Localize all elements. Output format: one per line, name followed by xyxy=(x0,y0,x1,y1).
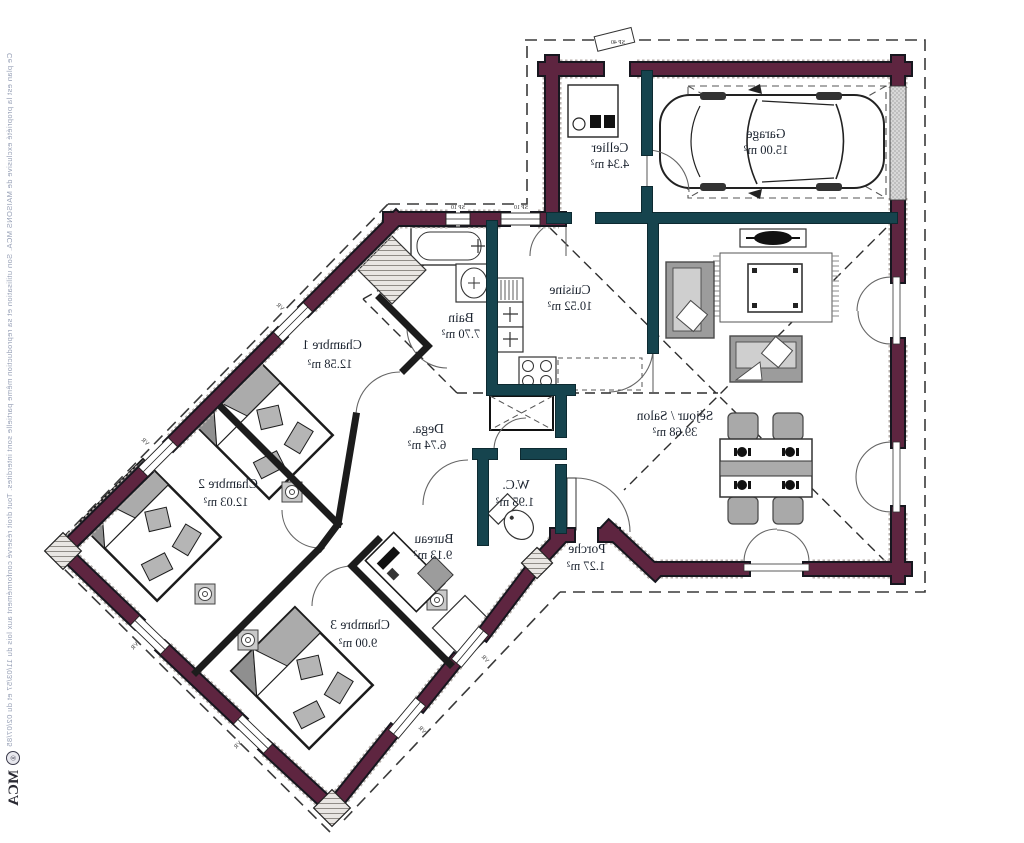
sofa-bottom xyxy=(730,336,802,382)
hall-cupboard xyxy=(490,396,553,430)
svg-text:9.13 m²: 9.13 m² xyxy=(414,548,453,562)
coffee-table xyxy=(748,264,802,312)
svg-text:Porche: Porche xyxy=(568,541,606,556)
svg-text:Bureau: Bureau xyxy=(414,531,453,546)
garage-car xyxy=(660,84,884,199)
svg-text:Séjour / Salon: Séjour / Salon xyxy=(637,408,714,423)
svg-text:Cuisine: Cuisine xyxy=(549,282,590,297)
sofa-left xyxy=(666,262,714,338)
svg-text:10.52 m²: 10.52 m² xyxy=(547,299,592,313)
svg-text:Dega.: Dega. xyxy=(412,421,444,436)
mca-logo: ® MCA xyxy=(6,752,22,806)
tv-stand xyxy=(740,229,806,247)
garage-door xyxy=(890,86,906,200)
nightstand-lamp-2 xyxy=(195,584,215,604)
window-label-sp10-a: SP 10 xyxy=(451,205,465,211)
svg-text:1.95 m²: 1.95 m² xyxy=(496,495,535,509)
svg-text:12.03 m²: 12.03 m² xyxy=(203,495,248,509)
svg-text:1.27 m²: 1.27 m² xyxy=(567,559,606,573)
cellier-water-heater xyxy=(568,85,618,137)
svg-text:Chambre 3: Chambre 3 xyxy=(330,617,390,632)
window-label-sp10-b: SP 10 xyxy=(514,205,528,211)
svg-text:Chambre 1: Chambre 1 xyxy=(302,337,362,352)
nightstand-lamp-3 xyxy=(238,630,258,650)
mca-logo-text: MCA xyxy=(6,770,22,806)
svg-text:W.C.: W.C. xyxy=(502,477,529,492)
svg-text:12.58 m²: 12.58 m² xyxy=(307,357,352,371)
floor-plan-page: SP 10 SP 10 SP 40 VR VR VR VR VR VR Gara… xyxy=(0,0,1024,843)
bathtub xyxy=(411,227,493,265)
svg-text:Garage: Garage xyxy=(747,126,786,141)
svg-text:39.68 m²: 39.68 m² xyxy=(652,425,697,439)
svg-text:15.00 m²: 15.00 m² xyxy=(743,143,788,157)
window-label-sp40: SP 40 xyxy=(611,40,625,46)
entry-door-leaf xyxy=(567,478,576,530)
copyright-text: Ce plan est la propriété exclusive de MA… xyxy=(5,53,14,747)
svg-text:Bain: Bain xyxy=(448,310,474,325)
floor-plan: SP 10 SP 10 SP 40 VR VR VR VR VR VR Gara… xyxy=(0,0,1024,843)
svg-text:Chambre 2: Chambre 2 xyxy=(198,476,258,491)
mca-logo-symbol: ® xyxy=(10,755,18,761)
svg-text:6.74 m²: 6.74 m² xyxy=(408,438,447,452)
svg-text:9.00 m²: 9.00 m² xyxy=(339,636,378,650)
svg-text:7.70 m²: 7.70 m² xyxy=(442,327,481,341)
svg-text:Cellier: Cellier xyxy=(591,140,628,155)
svg-text:4.34 m²: 4.34 m² xyxy=(591,157,630,171)
